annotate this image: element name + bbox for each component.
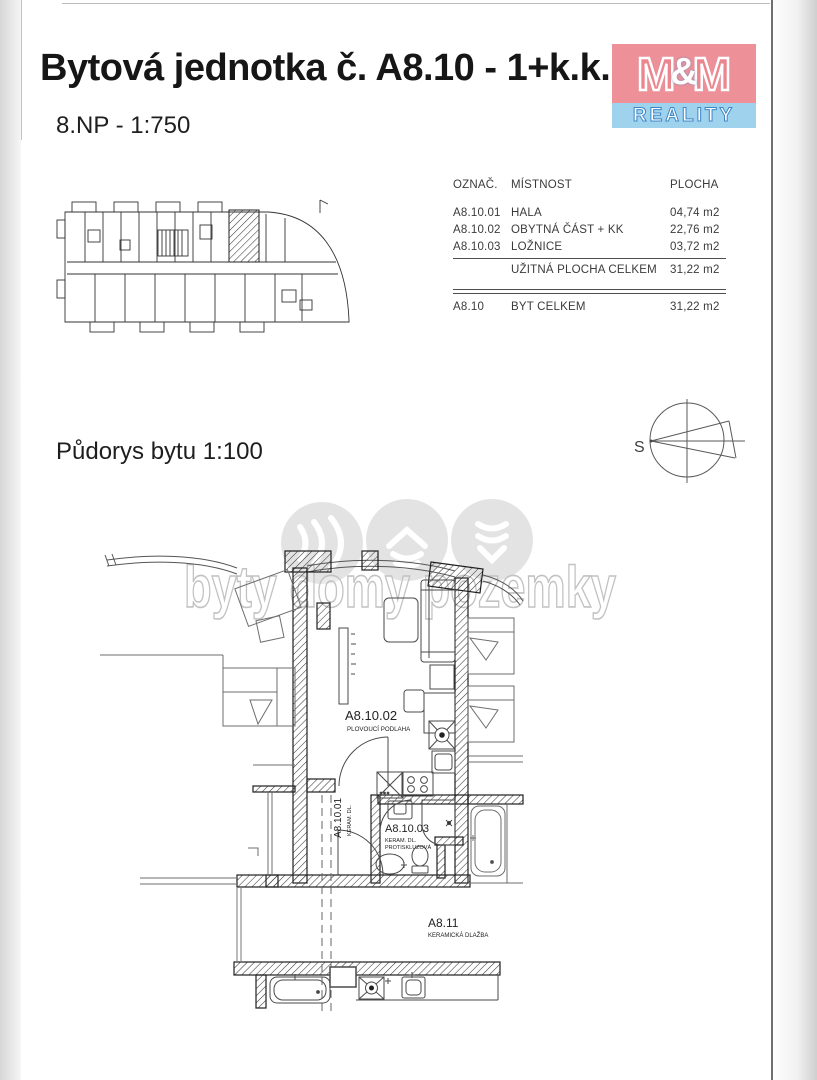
neighbour-left [100, 570, 301, 884]
mm-logo-top: M & M [612, 44, 756, 103]
photo-left-edge [0, 0, 21, 1080]
mm-reality-logo: M & M REALITY [612, 44, 756, 128]
bed-right-1 [468, 618, 514, 674]
walls [234, 551, 523, 1008]
row-room: UŽITNÁ PLOCHA CELKEM [511, 262, 670, 279]
logo-ampersand: & [670, 53, 697, 91]
sofa [421, 580, 455, 662]
row-code: A8.10 [453, 299, 511, 316]
side-table [430, 665, 454, 689]
door-arc-living [339, 737, 388, 786]
row-code: A8.10.03 [453, 239, 511, 256]
row-code [453, 262, 511, 279]
col-header-oznac: OZNAČ. [453, 177, 511, 194]
stove [402, 772, 433, 796]
neighbour-right [468, 618, 523, 883]
row-area: 22,76 m2 [670, 222, 726, 239]
bathtub-right [470, 806, 505, 876]
logo-reality-strip: REALITY [612, 103, 756, 128]
dishwasher [432, 751, 455, 773]
corridor-floor: KERAMICKÁ DLAŽBA [428, 931, 488, 939]
row-room: LOŽNICE [511, 239, 670, 256]
table-row: A8.10.01 HALA 04,74 m2 [453, 205, 726, 222]
highlighted-unit-marker [229, 210, 259, 262]
row-code: A8.10.01 [453, 205, 511, 222]
page-left-border [21, 0, 22, 140]
corridor-code: A8.11 [428, 916, 459, 930]
apartment-plan-label: Půdorys bytu 1:100 [56, 438, 263, 466]
hall-floor: KERAM. DL. [347, 804, 353, 836]
row-room: OBYTNÁ ČÁST + KK [511, 222, 670, 239]
washbasin-below [402, 972, 425, 998]
radiator [339, 628, 356, 704]
photo-right-edge [773, 0, 817, 1080]
kitchen-sink-round [429, 721, 455, 749]
page-top-border [62, 3, 770, 4]
living-room-floor: PLOVOUCÍ PODLAHA [347, 726, 411, 733]
row-area: 31,22 m2 [670, 299, 726, 316]
shower-below [359, 977, 391, 999]
row-area: 04,74 m2 [670, 205, 726, 222]
bath-floor-2: PROTISKLUZOVÁ [385, 844, 431, 851]
floor-scale-label: 8.NP - 1:750 [56, 112, 190, 140]
overview-outline [57, 200, 349, 332]
compass-south-label: S [634, 439, 645, 456]
hall-code: A8.10.01 [333, 798, 344, 838]
corridor-niche [330, 967, 356, 987]
kitchen-sink-unit [377, 772, 403, 798]
bath-code: A8.10.03 [385, 823, 429, 835]
row-area: 31,22 m2 [670, 262, 726, 279]
table-double-divider [453, 289, 726, 294]
logo-letter-m2: M [693, 51, 731, 97]
row-area: 03,72 m2 [670, 239, 726, 256]
area-table: OZNAČ. MÍSTNOST PLOCHA A8.10.01 HALA 04,… [453, 177, 726, 316]
page-title: Bytová jednotka č. A8.10 - 1+k.k. [40, 47, 610, 90]
apartment-floor-plan: A8.10.02 PLOVOUCÍ PODLAHA A8.10.01 KERAM… [95, 540, 525, 1070]
table-header-row: OZNAČ. MÍSTNOST PLOCHA [453, 177, 726, 194]
table-total-row: A8.10 BYT CELKEM 31,22 m2 [453, 299, 726, 316]
bath-floor-1: KERAM. DL. [385, 838, 417, 844]
chair [256, 616, 284, 643]
col-header-mistnost: MÍSTNOST [511, 177, 670, 194]
chair [404, 690, 424, 712]
dining-table [384, 598, 418, 642]
table-row: A8.10.02 OBYTNÁ ČÁST + KK 22,76 m2 [453, 222, 726, 239]
table-subtotal-row: UŽITNÁ PLOCHA CELKEM 31,22 m2 [453, 262, 726, 279]
col-header-plocha: PLOCHA [670, 177, 726, 194]
building-overview-plan [50, 190, 370, 340]
bed-right-2 [468, 686, 514, 742]
living-room-code: A8.10.02 [345, 708, 397, 723]
row-room: BYT CELKEM [511, 299, 670, 316]
table-divider [453, 258, 726, 259]
document-page: Bytová jednotka č. A8.10 - 1+k.k. M & M … [0, 0, 817, 1080]
bathtub-below [270, 974, 330, 1003]
bed-left [223, 668, 295, 726]
table-row: A8.10.03 LOŽNICE 03,72 m2 [453, 239, 726, 256]
row-code: A8.10.02 [453, 222, 511, 239]
row-room: HALA [511, 205, 670, 222]
living-room-furniture [339, 580, 455, 798]
